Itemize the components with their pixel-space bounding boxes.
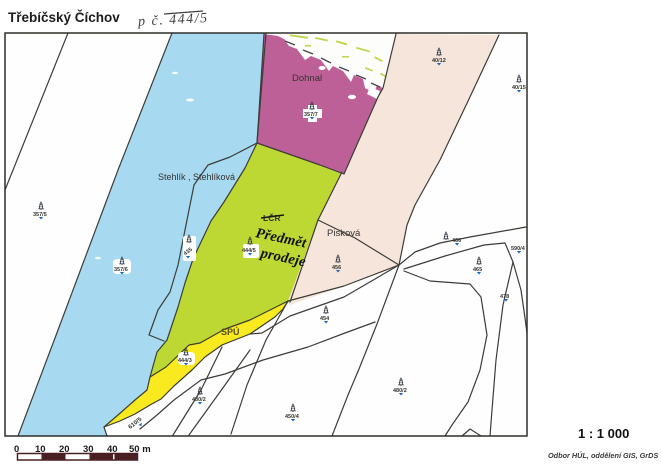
svg-text:Pisková: Pisková bbox=[327, 228, 361, 239]
svg-text:Stehlík , Stehlíková: Stehlík , Stehlíková bbox=[158, 172, 235, 182]
svg-text:Odbor HÚL, oddělení GIS, GrDS: Odbor HÚL, oddělení GIS, GrDS bbox=[548, 451, 658, 460]
svg-text:Dohnal: Dohnal bbox=[292, 73, 322, 84]
svg-text:1 : 1 000: 1 : 1 000 bbox=[578, 426, 629, 441]
svg-text:Třebíčský Číchov: Třebíčský Číchov bbox=[8, 10, 120, 25]
svg-text:SPÚ: SPÚ bbox=[221, 326, 240, 337]
